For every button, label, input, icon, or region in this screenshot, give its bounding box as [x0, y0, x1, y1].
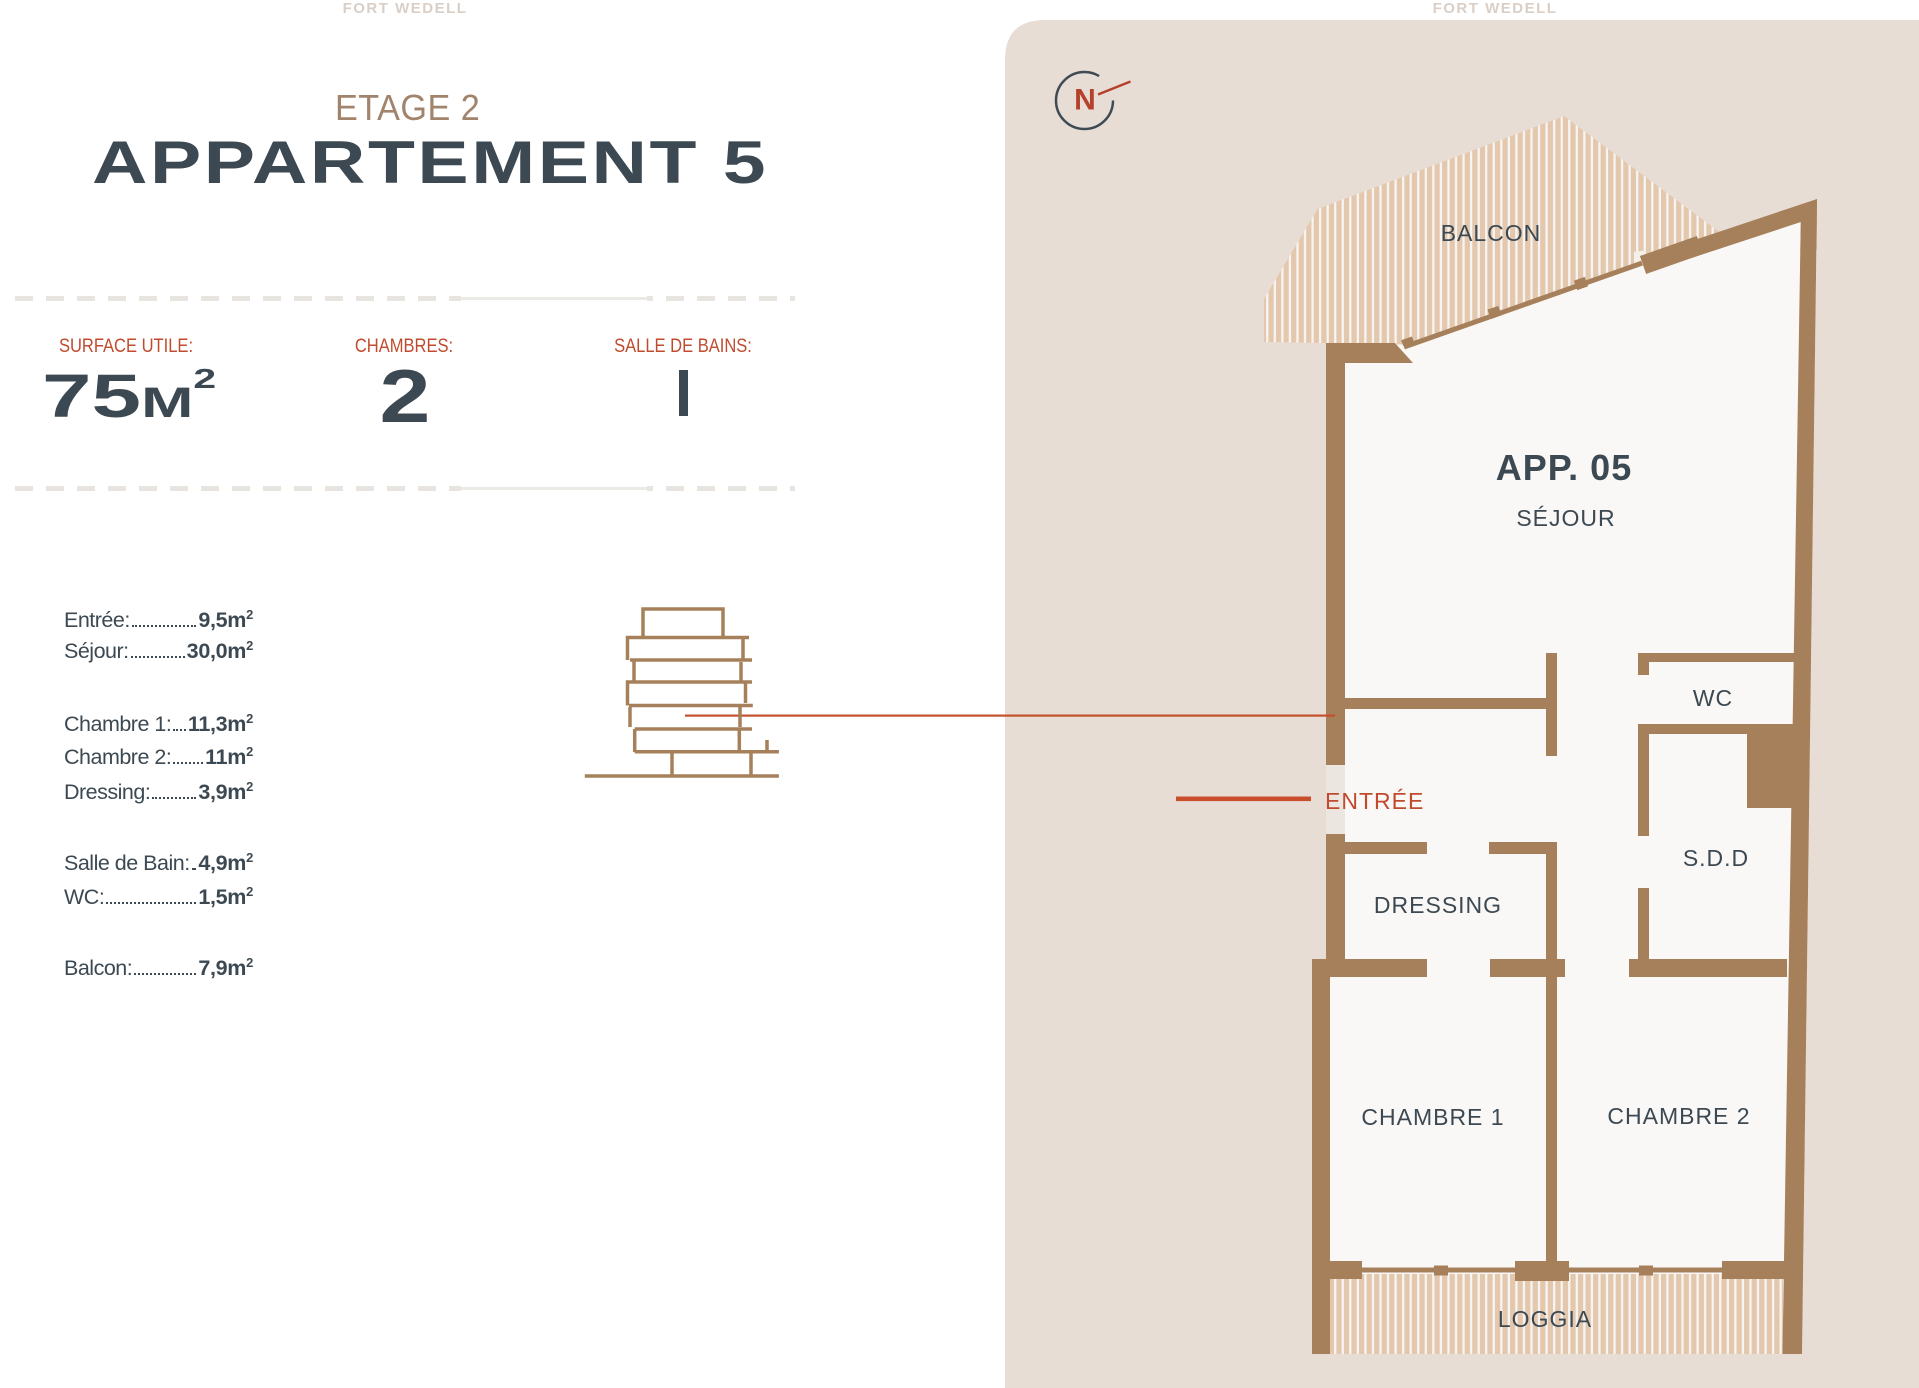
- svg-text:SÉJOUR: SÉJOUR: [1516, 505, 1615, 531]
- svg-text:ENTRÉE: ENTRÉE: [1325, 788, 1424, 814]
- svg-text:WC: WC: [1693, 685, 1733, 711]
- svg-text:CHAMBRE 1: CHAMBRE 1: [1361, 1104, 1504, 1130]
- svg-text:LOGGIA: LOGGIA: [1498, 1306, 1592, 1332]
- svg-text:APP. 05: APP. 05: [1496, 447, 1632, 488]
- svg-text:BALCON: BALCON: [1441, 220, 1542, 246]
- svg-text:DRESSING: DRESSING: [1374, 892, 1502, 918]
- svg-text:CHAMBRE 2: CHAMBRE 2: [1607, 1103, 1750, 1129]
- svg-text:S.D.D: S.D.D: [1683, 845, 1749, 871]
- svg-text:N: N: [1074, 84, 1096, 117]
